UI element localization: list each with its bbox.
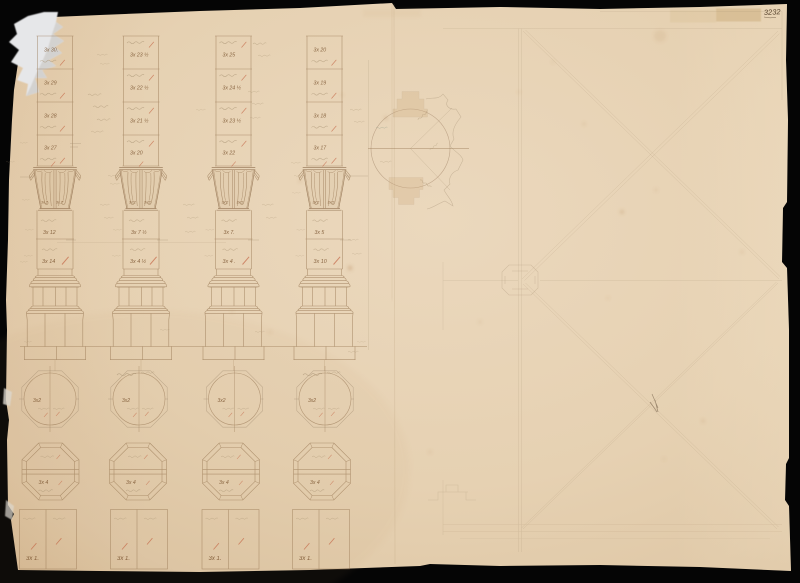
svg-text:3x.2: 3x.2 <box>313 201 320 205</box>
svg-text:3x 10: 3x 10 <box>314 259 327 265</box>
svg-text:3x 27: 3x 27 <box>44 146 58 152</box>
svg-text:3x 22: 3x 22 <box>223 151 236 157</box>
svg-text:3x.2: 3x.2 <box>129 201 136 205</box>
svg-text:3x 30.: 3x 30. <box>44 48 58 54</box>
svg-text:3x 22 ½: 3x 22 ½ <box>130 85 149 92</box>
svg-text:3x 14: 3x 14 <box>42 259 55 265</box>
svg-text:3x 7.: 3x 7. <box>224 230 235 236</box>
svg-text:3x 29: 3x 29 <box>44 81 57 87</box>
svg-text:3x 28: 3x 28 <box>44 114 57 120</box>
svg-text:3x.2: 3x.2 <box>41 201 48 205</box>
svg-text:3x 4 .: 3x 4 . <box>223 259 236 265</box>
svg-text:3x 7 ½: 3x 7 ½ <box>131 229 147 236</box>
svg-text:3x2: 3x2 <box>308 398 316 404</box>
svg-text:3x 1.: 3x 1. <box>299 556 312 562</box>
svg-text:3x 1.: 3x 1. <box>26 556 39 562</box>
svg-text:3x 20: 3x 20 <box>314 48 327 54</box>
svg-text:3232: 3232 <box>764 7 782 17</box>
svg-text:3x2: 3x2 <box>218 398 226 404</box>
svg-text:3x 12: 3x 12 <box>43 230 56 236</box>
svg-text:3x 24 ½: 3x 24 ½ <box>223 85 242 92</box>
svg-text:3x 4: 3x 4 <box>219 480 229 486</box>
svg-text:3x.2: 3x.2 <box>222 201 229 205</box>
svg-text:3x2: 3x2 <box>33 398 41 404</box>
svg-text:3x.2: 3x.2 <box>237 201 244 205</box>
svg-text:3x 4: 3x 4 <box>310 480 320 486</box>
svg-text:3x 4: 3x 4 <box>126 480 136 486</box>
svg-text:3x 21 ½: 3x 21 ½ <box>130 118 149 125</box>
svg-text:3x 4 ½: 3x 4 ½ <box>130 258 147 265</box>
svg-text:3x 1.: 3x 1. <box>117 556 130 562</box>
svg-text:3x 17: 3x 17 <box>314 146 328 152</box>
svg-text:3x 23 ½: 3x 23 ½ <box>130 52 149 59</box>
svg-text:3x 18: 3x 18 <box>314 114 327 120</box>
svg-text:3x 25: 3x 25 <box>223 53 236 59</box>
svg-text:3x.2: 3x.2 <box>328 201 335 205</box>
svg-text:3x 1.: 3x 1. <box>209 556 222 562</box>
svg-text:3x 23 ½: 3x 23 ½ <box>223 118 242 125</box>
svg-text:3x.2: 3x.2 <box>56 201 63 205</box>
svg-text:3x2: 3x2 <box>122 398 130 404</box>
svg-text:3x 20: 3x 20 <box>130 151 143 157</box>
svg-text:3x 4: 3x 4 <box>39 480 49 486</box>
svg-text:3x 19: 3x 19 <box>314 81 327 87</box>
svg-text:3x.2: 3x.2 <box>144 201 151 205</box>
svg-text:3x 5: 3x 5 <box>315 230 325 236</box>
